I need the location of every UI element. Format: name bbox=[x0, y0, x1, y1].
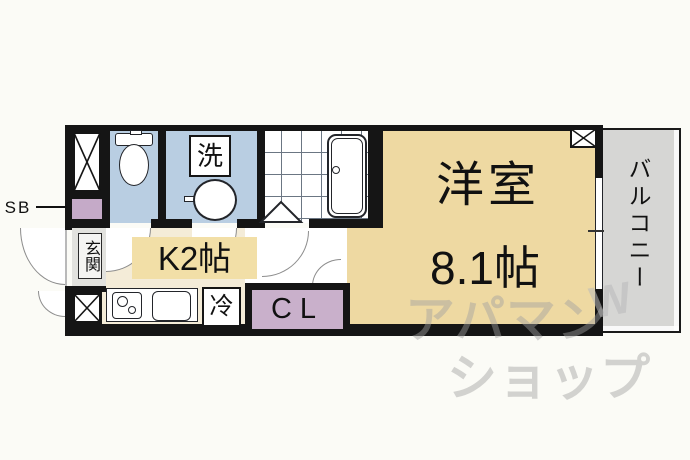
bathtub-drain bbox=[332, 166, 340, 174]
watermark-logo-text: W bbox=[586, 273, 636, 329]
kitchen-size-text: K2帖 bbox=[158, 242, 231, 275]
toilet-flush-button bbox=[130, 130, 142, 135]
toilet-bowl bbox=[119, 144, 149, 186]
bathtub-inner-rim bbox=[331, 138, 363, 214]
washbasin bbox=[193, 179, 237, 221]
floor-plan: SB 玄関 洗 K2帖 冷 CL 洋室 8.1帖 バルコニー アパマン W ショ… bbox=[0, 0, 690, 460]
kitchen-sink bbox=[152, 291, 191, 321]
refrigerator: 冷 bbox=[202, 287, 241, 327]
washing-machine-label: 洗 bbox=[197, 143, 223, 169]
entrance-label-text: 玄関 bbox=[78, 240, 102, 272]
entrance-door-arc-small bbox=[38, 291, 65, 317]
closet-label: CL bbox=[271, 295, 324, 324]
sb-box bbox=[72, 199, 102, 219]
wall-left-lower bbox=[65, 286, 72, 336]
shaft-xbox-bottom bbox=[72, 292, 102, 324]
balcony-window-tick bbox=[588, 230, 604, 232]
wall-mid-2 bbox=[151, 219, 192, 228]
shaft-xbox-corner bbox=[570, 128, 597, 148]
entrance-door-arc bbox=[20, 228, 65, 285]
watermark-line2-text: ショップ bbox=[447, 350, 651, 406]
main-room-name-text: 洋室 bbox=[436, 162, 540, 210]
wall-toilet-washroom bbox=[158, 125, 166, 228]
wall-left-upper bbox=[65, 125, 72, 230]
main-room-name: 洋室 bbox=[393, 158, 583, 214]
sb-label-text: SB bbox=[5, 199, 32, 216]
stove-burner-small bbox=[128, 306, 136, 314]
wall-top bbox=[65, 125, 603, 131]
stove bbox=[112, 292, 142, 319]
wall-mid-1 bbox=[65, 219, 106, 228]
wall-bathroom-mainroom bbox=[368, 125, 383, 228]
stove-burner-large bbox=[117, 296, 128, 307]
refrigerator-label: 冷 bbox=[210, 295, 234, 319]
bathroom-folding-door bbox=[258, 198, 306, 224]
entrance-label-box: 玄関 bbox=[78, 233, 102, 279]
balcony-window bbox=[595, 178, 603, 289]
closet: CL bbox=[252, 290, 343, 329]
washing-machine: 洗 bbox=[189, 135, 231, 177]
wall-mid-4 bbox=[309, 219, 383, 228]
balcony-label-text: バルコニー bbox=[621, 157, 655, 292]
sb-label: SB bbox=[2, 197, 34, 217]
watermark-line2: ショップ bbox=[447, 338, 651, 410]
entrance-opening-line bbox=[65, 230, 67, 286]
watermark-logo: W bbox=[586, 273, 637, 330]
wall-shaft-toilet bbox=[102, 125, 110, 228]
sb-pointer-line bbox=[36, 206, 67, 208]
shaft-xbox-top bbox=[72, 131, 102, 193]
kitchen-size-label: K2帖 bbox=[132, 237, 257, 279]
